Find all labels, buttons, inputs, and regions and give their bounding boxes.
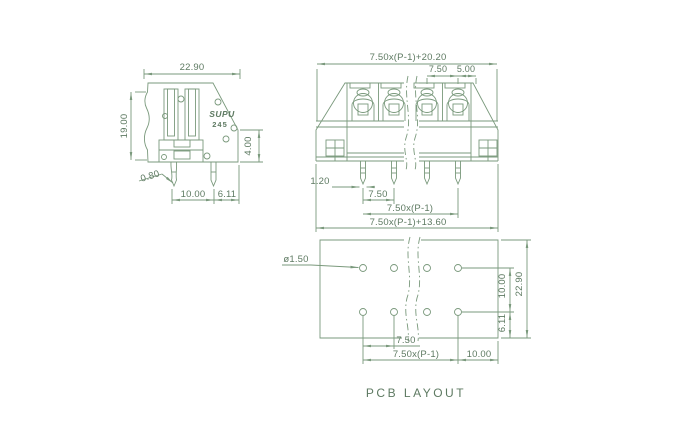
drawing-geometry [131, 64, 531, 364]
drawing-labels: 22.90 19.00 4.00 0.80 10.00 6.11 SUPU 24… [119, 52, 525, 400]
pcb-dim-hole-span-label: 7.50x(P-1) [393, 349, 439, 360]
model-number: 245 [212, 120, 228, 129]
front-dim-pin-pitch-label: 7.50 [368, 189, 387, 200]
front-dim-terminal-width-label: 5.00 [457, 64, 475, 74]
drawing-caption: PCB LAYOUT [366, 386, 466, 400]
front-dim-overall-width-label: 7.50x(P-1)+20.20 [370, 52, 447, 63]
front-dim-pitch-label: 7.50 [429, 64, 447, 74]
side-dim-height-label: 19.00 [119, 114, 130, 139]
pcb-dim-span-to-edge-label: 10.00 [467, 349, 492, 360]
screw-terminal [445, 83, 469, 121]
side-dim-pin-to-edge-label: 6.11 [218, 189, 237, 200]
side-dim-pitch-label: 10.00 [181, 189, 206, 200]
pcb-dim-hole-diameter-label: ø1.50 [283, 254, 308, 265]
front-dim-pin-span-label: 7.50x(P-1) [387, 203, 433, 214]
side-dim-pin-length-label: 4.00 [243, 136, 254, 155]
front-view-screw-terminals [350, 83, 469, 121]
pcb-outline [320, 240, 498, 338]
screw-terminal [381, 83, 405, 121]
screw-terminal [350, 83, 374, 121]
brand-logo: SUPU [209, 109, 235, 119]
front-dim-pin-width-label: 1.20 [310, 176, 329, 187]
pcb-dim-board-height-label: 22.90 [514, 272, 525, 297]
side-dim-pin-thickness-label: 0.80 [139, 168, 161, 184]
pcb-break-lines [406, 237, 420, 341]
pcb-holes [360, 265, 462, 316]
side-view-pins [171, 162, 216, 186]
pcb-dim-row-spacing-label: 10.00 [497, 274, 508, 299]
front-dim-body-width-label: 7.50x(P-1)+13.60 [370, 217, 447, 228]
side-dim-width-label: 22.90 [180, 62, 205, 73]
front-view-break-lines [405, 76, 418, 170]
terminal-block-drawing: 22.90 19.00 4.00 0.80 10.00 6.11 SUPU 24… [0, 0, 680, 440]
front-view-pins [361, 161, 461, 184]
technical-drawing-page: 22.90 19.00 4.00 0.80 10.00 6.11 SUPU 24… [0, 0, 680, 440]
pcb-dim-row-to-edge-label: 6.11 [497, 314, 508, 333]
side-view-slots [164, 89, 199, 140]
pcb-dim-hole-pitch-label: 7.50 [396, 335, 415, 346]
